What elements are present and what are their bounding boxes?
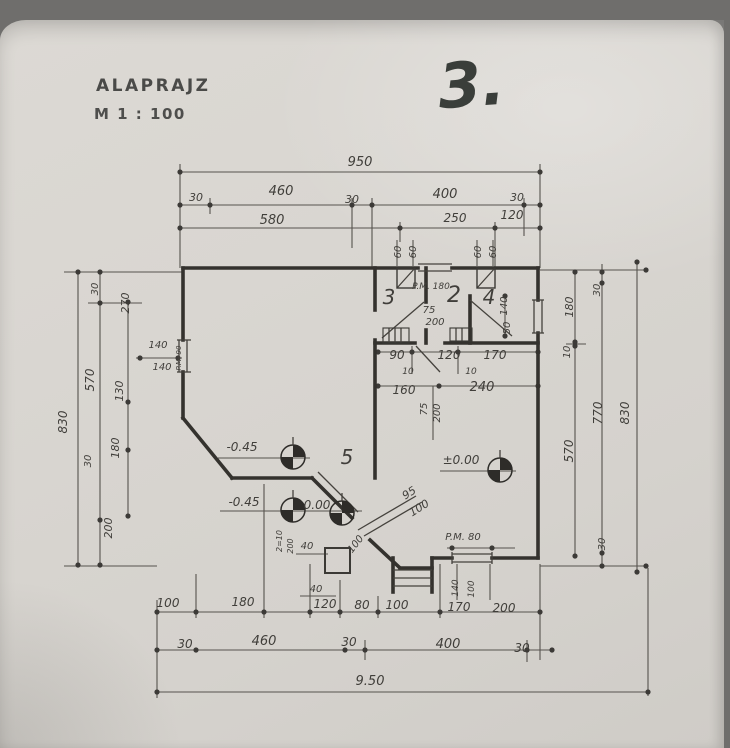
dim-tick: [437, 609, 442, 614]
dim-label: 10: [465, 367, 477, 377]
door-size: 95: [400, 484, 419, 502]
dim-tick: [177, 225, 182, 230]
dim-label: 30: [189, 191, 203, 204]
dim-tick: [599, 269, 604, 274]
dim-tick: [572, 269, 577, 274]
door-size: 200: [425, 317, 444, 328]
dim-tick: [643, 267, 648, 272]
dim-label: 400: [433, 187, 458, 202]
dim-tick: [177, 202, 182, 207]
dim-tick: [307, 609, 312, 614]
dim-label: 460: [252, 634, 277, 649]
dim-label: 180: [232, 595, 255, 609]
dim-label: 2=10: [275, 530, 284, 552]
dim-label: 160: [393, 383, 416, 397]
wall: [183, 418, 232, 478]
room-5-label: 5: [341, 445, 354, 469]
dim-label: 60: [473, 246, 484, 259]
dim-label: 580: [260, 213, 285, 228]
dim-tick: [154, 689, 159, 694]
dim-label: 120: [438, 348, 461, 362]
dim-label: 770: [591, 401, 605, 424]
room-2-label: 2: [447, 283, 461, 308]
dimension-labels: 95030460304003058025012060606060P.M. 180…: [56, 155, 632, 689]
dim-label: 400: [436, 637, 461, 652]
dim-tick: [599, 563, 604, 568]
level-mark-symbol: [281, 437, 305, 469]
dim-tick: [449, 545, 454, 550]
dim-label: 60: [393, 246, 404, 259]
wall: [370, 540, 400, 568]
dim-tick: [537, 169, 542, 174]
dim-tick: [375, 609, 380, 614]
dim-label: 130: [113, 381, 126, 402]
dim-tick: [337, 609, 342, 614]
dim-label: 30: [90, 283, 101, 296]
dim-tick: [537, 225, 542, 230]
door-size: 75: [423, 305, 436, 316]
fixture: [325, 548, 350, 573]
dim-label: 30: [510, 191, 524, 204]
dim-label: 100: [157, 596, 180, 610]
dim-tick: [645, 689, 650, 694]
dim-tick: [177, 169, 182, 174]
dim-tick: [193, 647, 198, 652]
dim-tick: [489, 545, 494, 550]
dimension-lines: [64, 164, 651, 698]
dim-tick: [362, 647, 367, 652]
level-mark-symbol: [281, 490, 305, 522]
dim-label: 140: [499, 296, 510, 315]
dim-tick: [75, 269, 80, 274]
dim-label: 40: [310, 584, 323, 595]
dim-tick: [207, 202, 212, 207]
dim-overall-right: 830: [618, 401, 632, 424]
dim-label: 140: [451, 579, 461, 596]
dim-tick: [97, 562, 102, 567]
dim-tick: [369, 202, 374, 207]
dim-label: 10: [562, 346, 573, 359]
dim-tick: [125, 399, 130, 404]
dim-label: 30: [177, 637, 193, 651]
dim-label: 170: [448, 600, 471, 614]
dim-label: 200: [286, 538, 295, 553]
dim-label: 570: [562, 439, 576, 462]
dim-tick: [154, 609, 159, 614]
dim-label: 180: [563, 297, 576, 318]
dim-tick: [643, 563, 648, 568]
scanned-floor-plan-photo: ALAPRAJZ M 1 : 100 3. 950304603040030580…: [0, 0, 730, 748]
dim-label: 80: [354, 598, 370, 612]
window-size: 140: [148, 340, 167, 351]
room-3-label: 3: [383, 285, 396, 309]
dim-label: 100: [346, 534, 366, 556]
dim-label: 200: [102, 518, 115, 539]
dim-tick: [193, 609, 198, 614]
dim-tick: [492, 225, 497, 230]
dim-label: 60: [408, 246, 419, 259]
dim-tick: [97, 300, 102, 305]
room-4-label: 4: [483, 285, 496, 309]
dim-tick: [436, 383, 441, 388]
dim-label: 30: [597, 538, 608, 551]
dim-tick: [634, 259, 639, 264]
dim-label: 120: [314, 597, 337, 611]
dim-label: 30: [514, 641, 530, 655]
dim-label: 90: [389, 348, 405, 362]
dim-tick: [97, 269, 102, 274]
dim-label: 10: [402, 367, 414, 377]
dim-label: 570: [83, 368, 97, 391]
dim-label: 50: [502, 322, 513, 335]
dim-tick: [137, 355, 142, 360]
dim-label: 120: [501, 208, 524, 222]
door-size: 100: [407, 497, 432, 519]
dim-tick: [572, 343, 577, 348]
floor-plan-drawing: 95030460304003058025012060606060P.M. 180…: [0, 0, 730, 748]
parapet-note: P.M. 90: [175, 345, 183, 370]
fixture: [383, 328, 409, 343]
window-size: 140: [152, 362, 171, 373]
dim-label: 100: [386, 598, 409, 612]
dim-tick: [549, 647, 554, 652]
level-mark-text: ±0.00: [443, 453, 480, 467]
dim-label: 30: [341, 635, 357, 649]
parapet-note: P.M. 80: [445, 532, 481, 543]
dim-tick: [409, 349, 414, 354]
dim-overall-top: 950: [348, 155, 373, 170]
level-mark-text: 0.00: [304, 498, 331, 512]
dim-tick: [75, 562, 80, 567]
dim-label: 60: [488, 246, 499, 259]
dim-label: 250: [444, 211, 467, 225]
dim-label: 30: [345, 193, 359, 206]
dim-label: 100: [467, 580, 477, 597]
dim-overall-bottom: 9.50: [356, 674, 385, 689]
dim-tick: [537, 609, 542, 614]
door-size: 200: [432, 403, 443, 422]
dim-overall-left: 830: [56, 410, 70, 433]
level-mark-symbol: [488, 450, 512, 482]
level-mark-text: -0.45: [226, 440, 257, 454]
dim-tick: [397, 225, 402, 230]
door-size: 75: [419, 403, 430, 416]
dim-tick: [634, 569, 639, 574]
parapet-note: P.M. 180: [412, 282, 450, 292]
dim-tick: [154, 647, 159, 652]
dim-tick: [261, 609, 266, 614]
dim-tick: [537, 202, 542, 207]
dim-label: 30: [83, 455, 94, 468]
dim-tick: [572, 553, 577, 558]
dim-label: 40: [301, 541, 314, 552]
dim-label: 270: [119, 293, 132, 314]
dim-tick: [125, 513, 130, 518]
dim-label: 460: [269, 184, 294, 199]
dim-label: 200: [493, 601, 516, 615]
dim-tick: [125, 447, 130, 452]
level-mark-text: -0.45: [228, 495, 259, 509]
dim-label: 240: [470, 380, 495, 395]
dim-label: 170: [484, 348, 507, 362]
dim-label: 30: [592, 284, 603, 297]
dim-label: 180: [109, 438, 122, 459]
